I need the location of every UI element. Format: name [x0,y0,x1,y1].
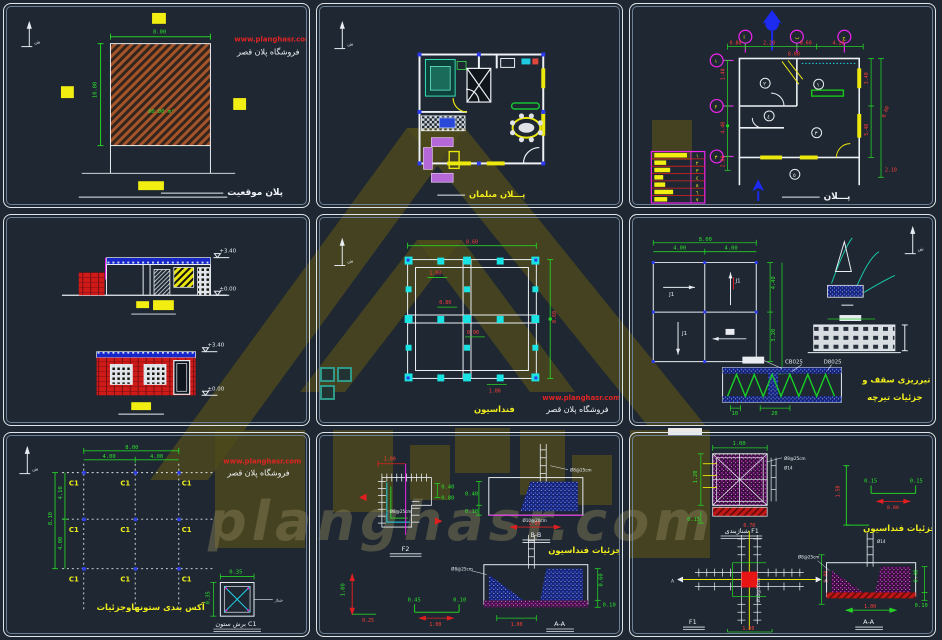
joists-drawing: ش 8.00 4.00 4.00 4.40 3.20 0.40 [633,218,932,422]
panel-furniture-plan: ش [316,3,623,208]
rebar-note: Ø8@25cm [570,468,592,473]
panel-title: فنداسیون [474,404,515,415]
detail-note: شناژ [274,597,284,602]
panel-title: جزئیات فنداسیون [863,523,932,534]
panel-title: پـــلان مبلمان [469,189,525,199]
joist-tag: J1 [681,331,687,337]
dim-text: 1.00 [511,622,523,628]
north-arrow-icon: ش [21,21,40,47]
door [174,361,190,395]
dim-text: 0.25 [362,618,374,624]
stairs [782,60,803,84]
rebar-note: Ø8@25cm [451,567,473,572]
dim-text: 0.40 [914,569,920,582]
svg-text:ش: ش [34,40,40,46]
axes-drawing: ش C1 C1 C1 C1 C1 C1 C1 C1 C1 8.00 4.00 4 [7,436,306,633]
north-arrow-icon: ش [19,446,38,474]
north-arrow-icon: ش [905,226,924,254]
concrete [520,482,577,512]
furniture-plan-drawing: ش [320,7,619,204]
panel-foundation-plan: ش 8.60 8.60 1.00 [316,214,623,426]
svg-text:٥: ٥ [696,183,699,189]
dim-text: 2.10 [885,167,897,173]
dim-text: 1.00 [733,441,746,447]
elevation-label-block [839,315,861,321]
dim-text: 1.00 [384,457,396,463]
dim-text: 8.60 [788,52,800,58]
truss-dims [731,405,790,411]
room-number: ٢ [763,82,766,88]
section-label: A-A [863,618,874,626]
column-pads [405,257,540,382]
svg-text:٣: ٣ [696,168,699,174]
window-2 [144,365,166,385]
column-tags: C1 C1 C1 C1 C1 C1 C1 C1 C1 [69,479,192,583]
section-label: B-B [530,531,541,539]
rebar-note: Ø8@25cm [390,509,412,514]
svg-text:C1: C1 [120,526,130,534]
dim-text: 2.00 [721,155,727,167]
dim-text: 1.00 [429,622,441,628]
foundation-details-2-drawing: 1.00 1.20 0.15 Ø8@25cm Ø14 [633,436,932,633]
dining-set [510,113,543,142]
room-tags [760,78,823,179]
plan-windows [760,68,861,159]
svg-text:C1: C1 [69,526,79,534]
dim-text: 1.40 [721,68,727,80]
dim-text: 0.60 [800,41,812,47]
panel-axes: ش C1 C1 C1 C1 C1 C1 C1 C1 C1 8.00 4.00 4 [3,432,310,637]
panel-title: پـــلان [824,192,851,202]
panel-foundation-details-1: 1.00 0.40 0.80 Ø8@25cm F2 Ø8@25 [316,432,623,637]
dim-text: 8.60 [466,240,478,246]
stair-shaft [467,68,491,102]
truss-label: CB025 [785,360,803,366]
svg-text:٧: ٧ [696,198,699,204]
detail-label: برش ستون C1 [215,620,256,628]
panel-border: 1.00 1.20 0.15 Ø8@25cm Ø14 [632,435,933,634]
dim-text: 5.40 [864,124,870,136]
panel-border: ش 80.00 m² 8.00 10.00 www.planghasr.com … [6,6,307,205]
dims-right [868,58,884,177]
elevation-a: +3.40 ±0.00 [62,249,237,314]
rebar-note: Ø10@20cm [522,518,546,523]
dim-text: 0.40 [465,491,478,497]
svg-text:٢: ٢ [696,161,699,167]
panel-plan: ا ب ج ١ ٢ ٣ 0.80 2.20 0.60 4.10 8.60 1.4… [629,3,936,208]
dim-text: 8.00 [699,237,712,243]
svg-text:0.80: 0.80 [439,300,451,306]
bar-shapes: 1.00 0.25 0.45 0.10 1.00 [340,575,466,628]
dim-text: 1.50 [835,485,841,497]
panel-site-plan: ش 80.00 m² 8.00 10.00 www.planghasr.com … [3,3,310,208]
truss-label: D8025 [824,360,842,366]
svg-text:C1: C1 [182,479,192,487]
level-text: +3.40 [208,343,225,349]
plan-walls [739,58,859,185]
dim-text: 0.45 [408,597,421,603]
brick-block [79,272,105,295]
level-text: ±0.00 [219,286,236,292]
dim-text: 4.40 [721,122,727,134]
section-bb: Ø8@25cm 0.40 0.10 1.00 Ø10@20cm B-B [465,444,592,543]
dim-text: 8.60 [881,105,891,118]
dims [653,240,782,367]
dim-text: 4.10 [58,486,64,499]
joist-tag: J1 [734,278,740,284]
svg-text:٦: ٦ [696,190,699,196]
elevation-b: +3.40 ±0.00 [97,343,225,414]
dim-text: 4.10 [832,41,844,47]
panel-border: ش C1 C1 C1 C1 C1 C1 C1 C1 C1 8.00 4.00 4 [6,435,307,634]
axis-label: ٢ [715,104,718,110]
axis-label: ٣ [715,155,718,161]
north-arrow-icon: ش [334,21,353,49]
joist-end-detail [828,238,895,305]
svg-text:0.90: 0.90 [467,330,479,336]
website-text: www.planghasr.com [234,36,306,44]
column-section-detail: 0.35 0.35 شناژ برش ستون C1 [205,570,283,632]
panel-border: +3.40 ±0.00 +3.40 ±0.00 [6,217,307,423]
elevations-drawing: +3.40 ±0.00 +3.40 ±0.00 [7,218,306,422]
room-number: ٤ [767,114,770,120]
dim-text: 1.00 [742,626,754,632]
truss-label-block [742,357,764,364]
dim-text: 0.15 [687,517,700,523]
f2-corner-detail: 1.00 0.40 0.80 Ø8@25cm F2 [360,457,454,557]
svg-text:C1: C1 [120,576,130,584]
axis-grid [62,464,215,612]
section-label: A-A [554,620,565,628]
dim-text: 0.80 [441,495,454,501]
dim-text: 0.35 [205,591,211,604]
cad-sheet: { "branding": { "url": "www.planghasr.co… [0,0,942,640]
ground-block [131,402,151,410]
dim-text: 20 [771,411,778,417]
svg-text:١: ١ [696,153,699,159]
red-strip [827,592,916,598]
rebar-note: Ø10@20cm [756,578,761,602]
sofa-set [423,138,459,183]
dim-text: 1.20 [693,470,699,483]
north-arrow-icon: ش [334,238,353,266]
dim-text: 0.80 [730,41,742,47]
dim-text: 2.20 [763,41,775,47]
dim-text: 4.00 [150,454,163,460]
shelf [512,103,540,109]
rebar-note: Ø8@25cm [784,456,806,461]
strip-footings [408,260,537,379]
lot-outline [79,44,235,197]
panel-border: ا ب ج ١ ٢ ٣ 0.80 2.20 0.60 4.10 8.60 1.4… [632,6,933,205]
panel-border: ش 8.60 8.60 1.00 [319,217,620,423]
kitchen-counter [421,116,465,131]
schedule-blocks [654,153,687,202]
svg-text:ش: ش [918,247,924,253]
svg-text:ش: ش [347,42,353,48]
schedule-table: ١ ٢ ٣ ٤ ٥ ٦ ٧ [651,152,704,204]
rebar-ladder [867,533,873,567]
website-text: www.planghasr.com [542,394,619,402]
svg-text:A: A [671,579,674,584]
dim-text: 0.15 [864,479,877,485]
axis-label: ا [743,35,744,41]
axis-label: ١ [715,59,718,65]
svg-text:C1: C1 [182,526,192,534]
dim-text: 0.10 [603,602,616,608]
dim-text: 3.20 [771,329,777,342]
window-1 [110,365,132,385]
dim-top-text: 8.00 [153,30,166,36]
dim-text: 0.40 [441,484,454,490]
dim-text: 1.00 [864,604,876,610]
section-label: F2 [402,545,410,553]
website-text: www.planghasr.com [223,458,301,466]
door-arcs [752,93,850,157]
panel-elevations: +3.40 ±0.00 +3.40 ±0.00 [3,214,310,426]
panel-title: جزئیات فنداسیون [548,545,619,556]
room-number: ٥ [793,173,796,179]
panel-title: پلان موقعیت [227,188,283,198]
dim-text: 0.10 [915,603,928,609]
schedule-numbers: ١ ٢ ٣ ٤ ٥ ٦ ٧ [696,153,699,203]
dim-text: 0.10 [453,597,466,603]
dim-text: 4.40 [771,276,777,289]
panel-border: ش 8.00 4.00 4.00 4.40 3.20 0.40 [632,217,933,423]
dim-text: 0.35 [229,570,242,576]
lean-concrete [484,600,588,607]
room-number: ٣ [815,131,818,137]
svg-text:C1: C1 [182,576,192,584]
dim-text: 1.00 [340,583,346,596]
shop-name-text: فروشگاه پلان قصر [545,404,608,414]
svg-text:ش: ش [347,259,353,265]
dim-text: 10 [732,411,739,417]
dim-text: 0.15 [910,479,923,485]
dim-text: 0.10 [465,509,478,515]
panel-foundation-details-2: 1.00 1.20 0.15 Ø8@25cm Ø14 [629,432,936,637]
dim-text: 8.10 [48,512,54,525]
truss-web [728,374,835,396]
shop-name-text: فروشگاه پلان قصر [226,468,289,478]
dim-bottom [497,615,537,621]
panel-title: آکس بندی ستونهاوجزئیات [97,601,206,613]
axis-nodes [82,471,181,570]
ladder [771,458,776,502]
dim-text: 0.70 [743,523,755,529]
column-stub [741,572,757,588]
panel-border: 1.00 0.40 0.80 Ø8@25cm F2 Ø8@25 [319,435,620,634]
panel-border: ش [319,6,620,205]
foundation-plan-drawing: ش 8.60 8.60 1.00 [320,218,619,422]
dim-green [434,484,440,498]
panel-title-line2: جزئیات تیرچه [867,392,922,403]
room-number: ١ [817,83,820,89]
svg-text:C1: C1 [69,479,79,487]
level-text: +3.40 [219,249,236,255]
svg-text:1.00: 1.00 [489,388,501,394]
corner-nodes [407,259,538,380]
rebar-ladder [540,444,546,482]
svg-text:C1: C1 [120,479,130,487]
section-label: F1 [689,618,697,626]
svg-text:ش: ش [32,467,38,473]
bar-bending: 1.50 0.15 0.15 0.90 [835,466,922,525]
panel-joists: ش 8.00 4.00 4.00 4.40 3.20 0.40 [629,214,936,426]
panel-title-line1: تیرریزی سقف و [861,374,930,385]
site-plan-drawing: ش 80.00 m² 8.00 10.00 www.planghasr.com … [7,7,306,204]
dim-text: 4.00 [58,537,64,550]
south-symbol-icon [752,179,764,201]
cross-footing-plan: 0.70 1.00 1.00 Ø10@20cm A A F1 [671,523,829,632]
lot-area-text: 80.00 m² [148,108,174,115]
dim-text: 8.00 [125,445,138,451]
plan-drawing: ا ب ج ١ ٢ ٣ 0.80 2.20 0.60 4.10 8.60 1.4… [633,7,932,204]
joist-elevation [808,315,908,353]
dim-text: 3.40 [864,72,870,84]
dim-text: 4.00 [725,246,738,252]
door-2 [198,268,210,296]
rebar-note: Ø14 [784,466,793,471]
counter [812,90,844,96]
door [154,269,170,295]
svg-text:٤: ٤ [696,176,699,182]
svg-text:1.00: 1.00 [429,270,441,276]
rebar-note: Ø14 [877,539,886,544]
ground-blocks [136,300,174,310]
dim-text: 4.00 [103,454,116,460]
wc-fixtures [501,58,539,67]
dim-text: 0.60 [599,573,605,586]
red-strip [713,507,767,516]
dim-left-text: 10.00 [93,82,99,98]
shop-name-text: فروشگاه پلان قصر [236,47,299,57]
dim-text: 8.60 [552,311,558,323]
dim-text: 0.90 [887,505,899,511]
foundation-details-drawing: 1.00 0.40 0.80 Ø8@25cm F2 Ø8@25 [320,436,619,633]
cyan-bar [387,483,410,523]
svg-text:C1: C1 [69,576,79,584]
rebar-note: Ø8@25cm [798,555,820,560]
dim-text: 4.00 [673,246,686,252]
joist-tag: J1 [668,292,674,298]
bed [425,59,466,96]
level-text: ±0.00 [208,386,225,392]
window-hatched [174,268,194,288]
